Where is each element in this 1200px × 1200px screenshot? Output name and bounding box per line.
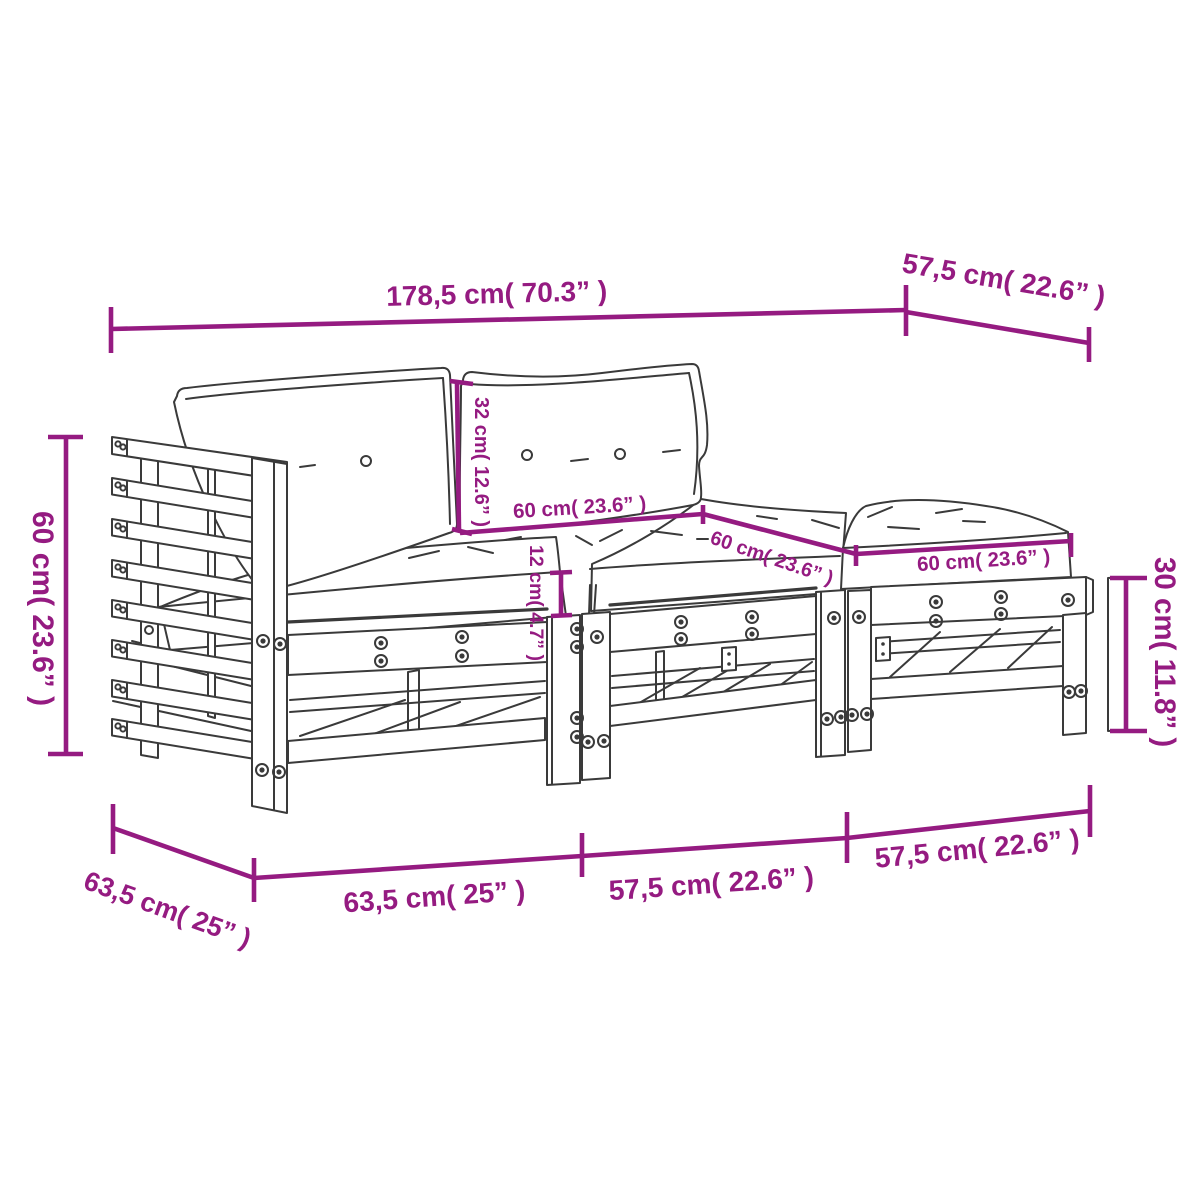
svg-text:30 cm( 11.8” ): 30 cm( 11.8” ): [1148, 557, 1181, 747]
svg-text:178,5 cm( 70.3” ): 178,5 cm( 70.3” ): [386, 275, 608, 312]
svg-text:60 cm( 23.6” ): 60 cm( 23.6” ): [26, 511, 59, 706]
svg-text:32 cm( 12.6” ): 32 cm( 12.6” ): [470, 397, 492, 527]
svg-text:12 cm( 4.7” ): 12 cm( 4.7” ): [525, 545, 547, 661]
